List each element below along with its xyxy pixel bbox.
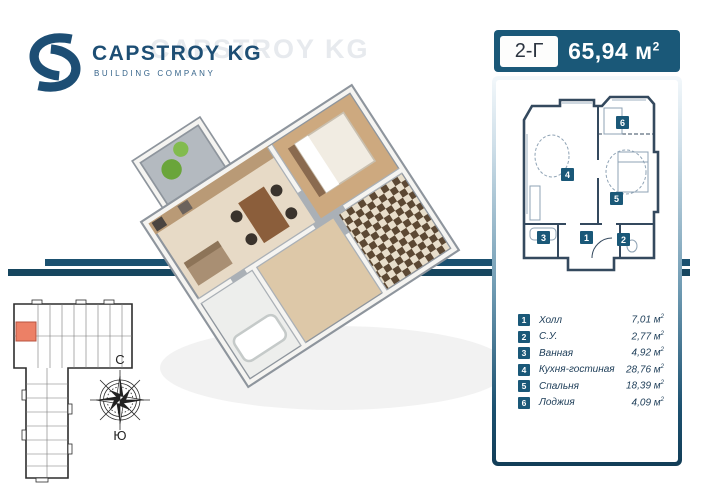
room-marker-6: 6 <box>616 116 629 129</box>
plan-panel: 1 2 3 4 5 6 1 Холл 7,01 м2 2 С.У. 2,77 м… <box>492 76 682 466</box>
room-marker-5: 5 <box>610 192 623 205</box>
brand-logo: CAPSTROY KG BUILDING COMPANY <box>24 32 262 94</box>
plan-outer-walls <box>524 97 658 270</box>
brand-tagline: BUILDING COMPANY <box>92 69 262 78</box>
legend-area: 7,01 м2 <box>632 314 664 325</box>
room-legend: 1 Холл 7,01 м2 2 С.У. 2,77 м2 3 Ванная 4… <box>518 314 664 413</box>
legend-num: 3 <box>518 347 530 359</box>
legend-area-unit: м <box>654 397 661 408</box>
room-marker-1: 1 <box>580 231 593 244</box>
compass-north-label: С <box>115 352 124 367</box>
unit-area-unit: м <box>635 38 653 64</box>
legend-name: Спальня <box>539 381 626 392</box>
compass-icon: С Ю <box>80 350 160 442</box>
render-shadow <box>160 326 495 410</box>
unit-area: 65,94 м2 <box>558 38 670 65</box>
legend-row: 1 Холл 7,01 м2 <box>518 314 664 326</box>
legend-name: Холл <box>539 315 632 326</box>
legend-area: 4,09 м2 <box>632 397 664 408</box>
legend-area-sup: 2 <box>661 397 664 403</box>
legend-area: 18,39 м2 <box>626 380 664 391</box>
legend-row: 4 Кухня-гостиная 28,76 м2 <box>518 364 664 376</box>
legend-num: 2 <box>518 331 530 343</box>
legend-area-value: 4,92 <box>632 348 651 359</box>
legend-area: 4,92 м2 <box>632 347 664 358</box>
legend-num: 1 <box>518 314 530 326</box>
legend-num: 4 <box>518 364 530 376</box>
legend-area-sup: 2 <box>661 331 664 337</box>
legend-area-sup: 2 <box>661 314 664 320</box>
logo-icon <box>24 32 86 94</box>
plan-panel-inner: 1 2 3 4 5 6 1 Холл 7,01 м2 2 С.У. 2,77 м… <box>496 80 678 462</box>
legend-area-value: 28,76 <box>626 364 651 375</box>
legend-area-value: 4,09 <box>632 397 651 408</box>
room-marker-3: 3 <box>537 231 550 244</box>
legend-area-sup: 2 <box>661 347 664 353</box>
legend-name: С.У. <box>539 331 632 342</box>
legend-area-value: 2,77 <box>632 331 651 342</box>
legend-name: Кухня-гостиная <box>539 364 626 375</box>
legend-num: 6 <box>518 397 530 409</box>
room-marker-2: 2 <box>617 233 630 246</box>
legend-area-unit: м <box>654 348 661 359</box>
room-marker-4: 4 <box>561 168 574 181</box>
compass-south-label: Ю <box>113 428 126 442</box>
legend-row: 5 Спальня 18,39 м2 <box>518 380 664 392</box>
legend-row: 6 Лоджия 4,09 м2 <box>518 397 664 409</box>
unit-label: 2-Г <box>500 36 558 67</box>
flyer-canvas: CAPSTROY KG CAPSTROY KG BUILDING COMPANY… <box>0 0 726 492</box>
legend-area-unit: м <box>654 315 661 326</box>
unit-area-sup: 2 <box>653 39 660 53</box>
floor-plan-2d <box>510 94 670 280</box>
unit-area-value: 65,94 <box>568 38 628 64</box>
legend-area-sup: 2 <box>661 380 664 386</box>
legend-area-value: 18,39 <box>626 381 651 392</box>
legend-area-unit: м <box>654 364 661 375</box>
highlighted-unit <box>16 322 36 341</box>
legend-name: Ванная <box>539 348 632 359</box>
legend-area: 2,77 м2 <box>632 331 664 342</box>
legend-area: 28,76 м2 <box>626 364 664 375</box>
unit-header-badge: 2-Г 65,94 м2 <box>494 30 680 72</box>
legend-row: 3 Ванная 4,92 м2 <box>518 347 664 359</box>
legend-name: Лоджия <box>539 397 632 408</box>
brand-name: CAPSTROY KG <box>92 42 262 66</box>
apartment-3d-render <box>105 68 495 440</box>
legend-area-value: 7,01 <box>632 315 651 326</box>
legend-area-unit: м <box>654 331 661 342</box>
logo-text: CAPSTROY KG BUILDING COMPANY <box>92 42 262 78</box>
legend-num: 5 <box>518 380 530 392</box>
legend-area-sup: 2 <box>661 364 664 370</box>
legend-row: 2 С.У. 2,77 м2 <box>518 331 664 343</box>
legend-area-unit: м <box>654 381 661 392</box>
